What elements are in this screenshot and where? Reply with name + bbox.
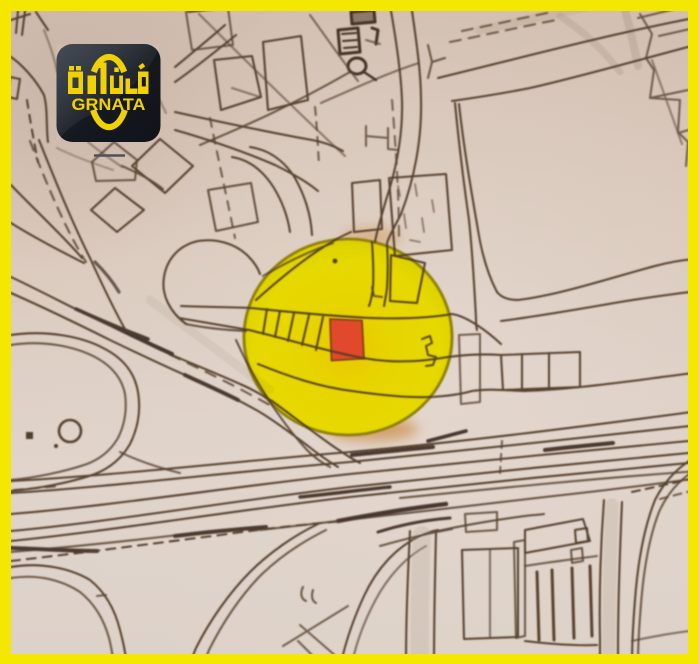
svg-text:GRNATA: GRNATA [72, 95, 146, 114]
